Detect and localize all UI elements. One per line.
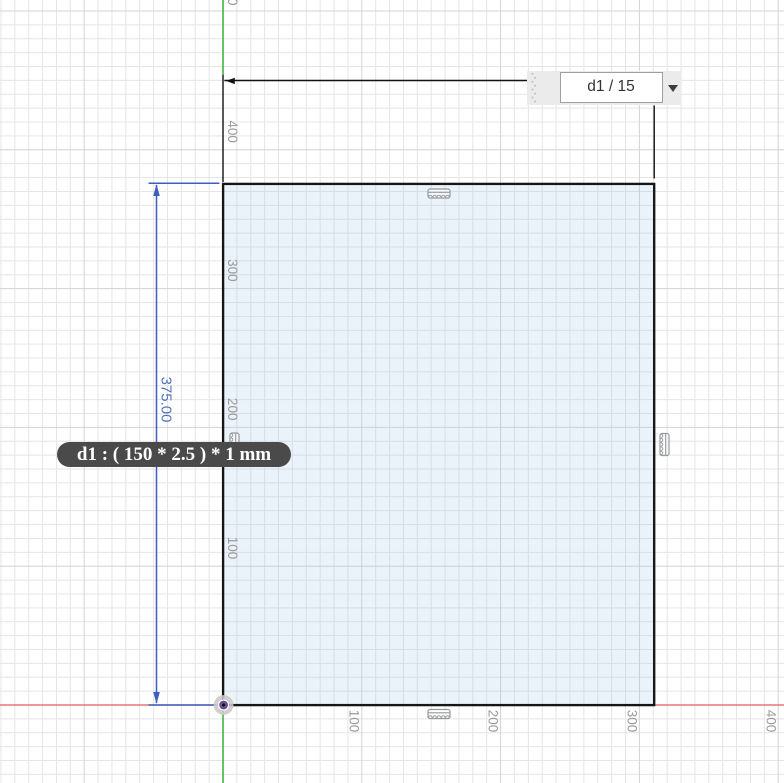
svg-text:200: 200 bbox=[225, 398, 240, 421]
svg-text:300: 300 bbox=[625, 710, 640, 733]
svg-text:100: 100 bbox=[225, 537, 240, 560]
svg-text:200: 200 bbox=[486, 710, 501, 733]
svg-text:375.00: 375.00 bbox=[158, 377, 175, 423]
svg-text:100: 100 bbox=[347, 710, 362, 733]
svg-text:500: 500 bbox=[225, 0, 240, 5]
svg-text:400: 400 bbox=[225, 120, 240, 143]
svg-text:400: 400 bbox=[763, 710, 778, 733]
svg-text:300: 300 bbox=[225, 259, 240, 282]
